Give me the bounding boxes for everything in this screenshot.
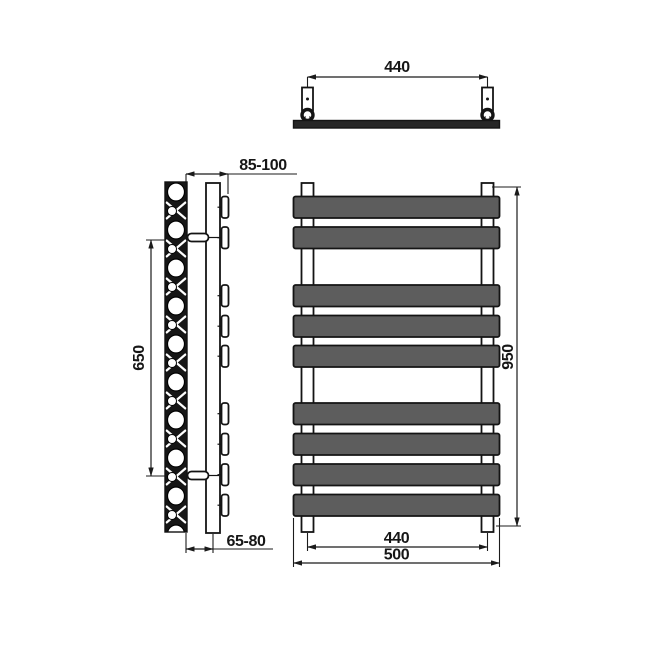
- towel-bar-cap: [222, 495, 229, 517]
- technical-drawing-canvas: 440 85-100: [0, 0, 650, 650]
- side-view: 85-100: [131, 157, 297, 553]
- dim-label-overall-height: 950: [500, 344, 517, 370]
- towel-bar-cap: [222, 227, 229, 249]
- front-view: 950 440 500: [294, 183, 522, 567]
- top-view: 440: [294, 59, 500, 128]
- bracket-screw-dot: [486, 98, 489, 101]
- dim-label-bracket-spacing-vertical: 650: [131, 345, 148, 371]
- towel-bars: [294, 197, 500, 517]
- towel-bar: [294, 434, 500, 456]
- wall-bracket-left: [302, 88, 313, 122]
- towel-bar: [294, 403, 500, 425]
- rail-plan-bar: [294, 121, 500, 129]
- towel-bar: [294, 285, 500, 307]
- dim-label-top-bracket-spacing: 440: [384, 59, 410, 76]
- wall-section: [165, 182, 187, 532]
- dim-label-tube-spacing: 440: [384, 530, 410, 547]
- bracket-arm: [188, 234, 209, 242]
- towel-rail-technical-drawing: 440 85-100: [0, 0, 650, 650]
- towel-bar: [294, 464, 500, 486]
- towel-bar-cap: [222, 403, 229, 425]
- towel-bar: [294, 197, 500, 219]
- towel-bar: [294, 227, 500, 249]
- bracket-screw-dot: [306, 98, 309, 101]
- towel-bar-cap: [222, 346, 229, 368]
- towel-bar-cap: [222, 285, 229, 307]
- towel-bar-cap: [222, 197, 229, 219]
- wall-bracket-right: [482, 88, 493, 122]
- towel-bar: [294, 346, 500, 368]
- dim-label-overall-width: 500: [384, 547, 410, 564]
- towel-bar: [294, 316, 500, 338]
- towel-bar: [294, 495, 500, 517]
- bracket-arm: [188, 472, 209, 480]
- towel-bar-cap: [222, 316, 229, 338]
- dim-label-wall-offset-top: 85-100: [239, 157, 287, 174]
- towel-bar-cap: [222, 464, 229, 486]
- dim-label-wall-offset-bottom: 65-80: [227, 533, 266, 550]
- towel-bar-cap: [222, 434, 229, 456]
